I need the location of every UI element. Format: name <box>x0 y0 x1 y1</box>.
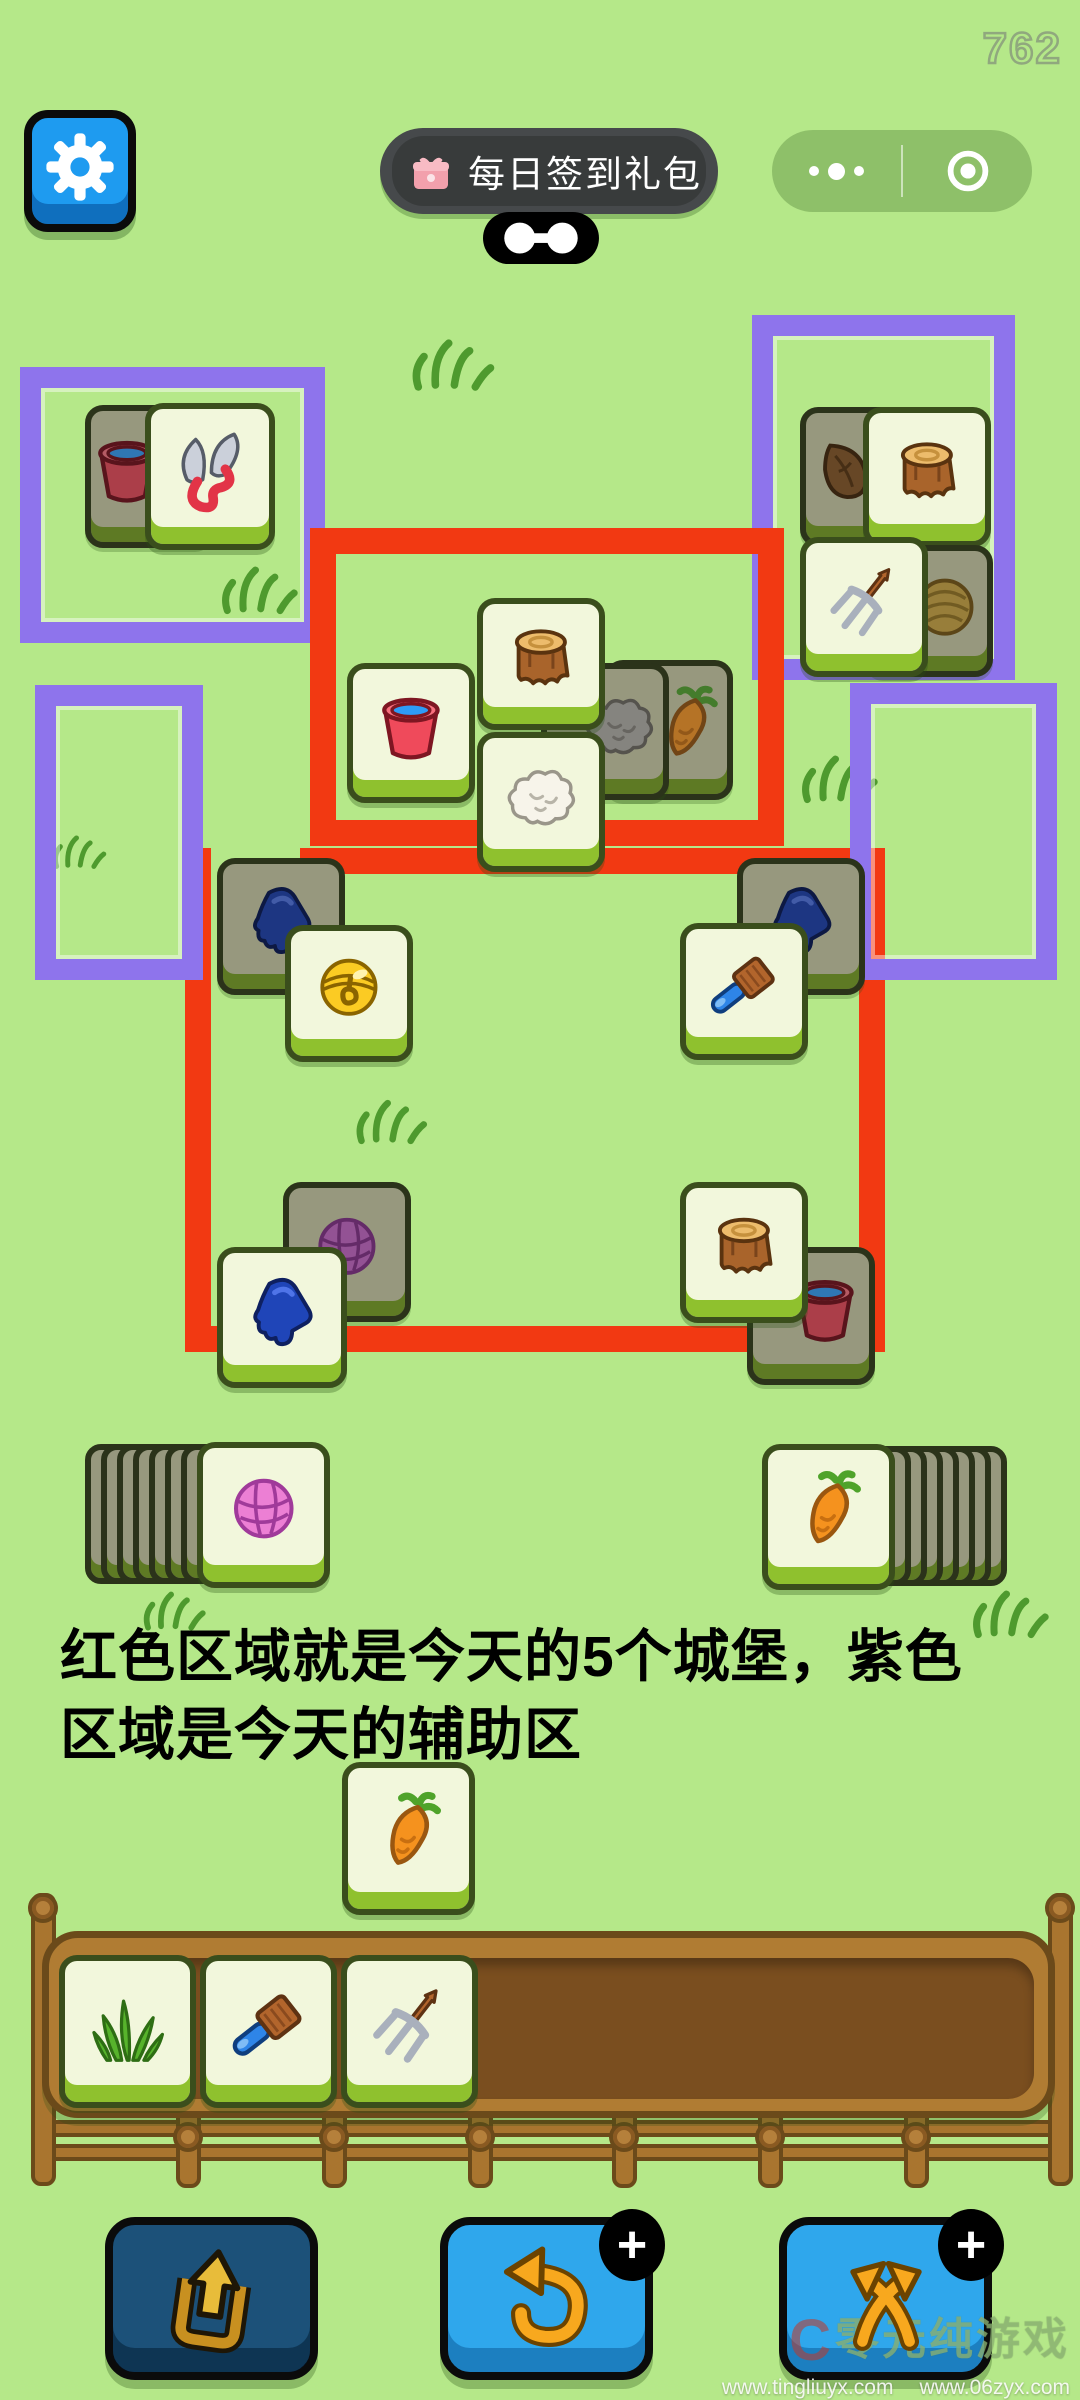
tile-carrot[interactable] <box>762 1444 895 1590</box>
daily-signin-pill: 每日签到礼包 <box>392 136 706 206</box>
daily-signin-label: 每日签到礼包 <box>468 144 702 198</box>
more-dots-icon <box>854 166 864 176</box>
stump-icon <box>498 614 584 703</box>
more-dots-icon <box>828 163 845 180</box>
tile-pitchfork <box>341 1955 478 2108</box>
tile-pile-right[interactable] <box>762 1444 1007 1594</box>
tile-bell[interactable] <box>285 925 413 1062</box>
shuffle-arrows-icon <box>827 2240 945 2358</box>
add-more-badge[interactable]: + <box>938 2209 1004 2281</box>
fence-post-knob <box>1045 1893 1075 1923</box>
more-dots-icon <box>809 166 819 176</box>
brush-icon <box>701 939 787 1032</box>
tile-shears[interactable] <box>145 403 275 550</box>
bucket-icon <box>368 680 454 775</box>
tile-brush <box>200 1955 337 2108</box>
fence-post-knob <box>465 2122 495 2152</box>
tile-bucket[interactable] <box>347 663 475 803</box>
pitchfork-icon <box>821 554 907 649</box>
helper-zone-purple <box>35 685 203 980</box>
stump-icon <box>701 1199 787 1294</box>
tile-stump[interactable] <box>477 598 605 730</box>
more-button[interactable] <box>772 130 901 212</box>
gear-icon <box>40 127 120 207</box>
game-screen: 762 每日签到礼包 红色区域就是今天的5个城堡，紫色 区域是今天的辅助区 <box>0 0 1080 2400</box>
carrot-icon <box>784 1461 874 1560</box>
bell-icon <box>306 941 392 1034</box>
guide-annotation-line2: 区域是今天的辅助区 <box>60 1696 1050 1774</box>
watermark-url: www.tingliuyx.com <box>722 2376 894 2400</box>
remaining-tiles-counter: 762 <box>983 24 1062 74</box>
drag-handle-icon <box>483 212 599 266</box>
tile-glove[interactable] <box>217 1247 347 1388</box>
tile-brush[interactable] <box>680 923 808 1060</box>
eject-pocket-icon <box>153 2240 271 2358</box>
fence-post-knob <box>755 2122 785 2152</box>
gift-icon <box>406 146 456 196</box>
fence-post-knob <box>901 2122 931 2152</box>
glove-icon <box>238 1264 325 1359</box>
tile-carrot[interactable] <box>342 1762 475 1915</box>
watermark-logo: C <box>789 2308 831 2373</box>
tile-stump[interactable] <box>680 1182 808 1323</box>
target-icon <box>939 142 997 200</box>
pitchfork-icon <box>363 1973 456 2077</box>
undo-arrow-icon <box>488 2240 606 2358</box>
tile-grass <box>59 1955 196 2108</box>
fence-post-knob <box>173 2122 203 2152</box>
guide-annotation-line1: 红色区域就是今天的5个城堡，紫色 <box>60 1618 1050 1696</box>
daily-signin-button[interactable]: 每日签到礼包 <box>380 128 718 214</box>
shears-icon <box>166 421 253 521</box>
fence-post-knob <box>319 2122 349 2152</box>
yarn_pink-icon <box>219 1459 309 1558</box>
brush-icon <box>222 1973 315 2077</box>
guide-annotation: 红色区域就是今天的5个城堡，紫色 区域是今天的辅助区 <box>60 1618 1050 1774</box>
carrot-icon <box>364 1780 454 1884</box>
wool_white-icon <box>498 749 584 844</box>
tile-wool_white[interactable] <box>477 732 605 872</box>
fence-post-knob <box>609 2122 639 2152</box>
grass-icon <box>81 1973 174 2077</box>
helper-zone-purple <box>850 683 1057 980</box>
tile-pile-left[interactable] <box>85 1442 330 1592</box>
stump-icon <box>884 424 970 519</box>
watermark-url: www.06zyx.com <box>919 2376 1070 2400</box>
miniprogram-capsule <box>772 130 1032 212</box>
exit-button[interactable] <box>903 130 1032 212</box>
add-more-badge[interactable]: + <box>599 2209 665 2281</box>
tile-yarn_pink[interactable] <box>197 1442 330 1588</box>
tile-stump[interactable] <box>863 407 991 547</box>
grass-tuft-icon <box>350 1090 432 1147</box>
undo-prop-button[interactable]: + <box>440 2217 653 2380</box>
fence-post-knob <box>28 1893 58 1923</box>
tile-pitchfork[interactable] <box>800 537 928 677</box>
grass-tuft-icon <box>405 328 500 395</box>
settings-button[interactable] <box>24 110 136 232</box>
eject-prop-button[interactable] <box>105 2217 318 2380</box>
